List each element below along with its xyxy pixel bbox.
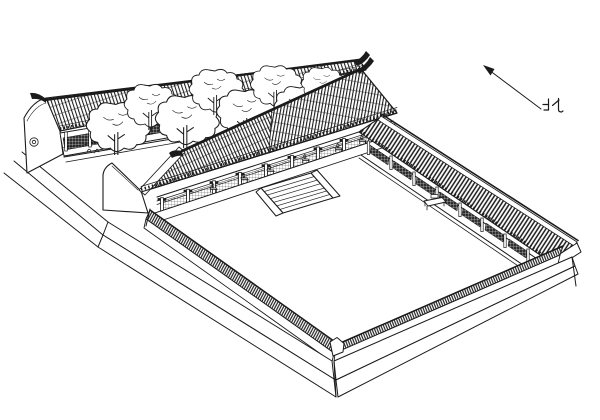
gallery-column bbox=[413, 172, 415, 186]
gallery-column bbox=[390, 156, 392, 170]
gallery-column bbox=[367, 141, 369, 155]
gallery-column bbox=[504, 234, 506, 248]
architectural-drawing: 北 bbox=[0, 0, 600, 420]
platform-west-steps bbox=[4, 152, 108, 247]
north-arrow-head bbox=[483, 65, 495, 76]
gallery-column bbox=[459, 203, 461, 217]
base-platform bbox=[98, 222, 578, 397]
north-arrow-line bbox=[489, 70, 541, 109]
north-label: 北 bbox=[543, 100, 557, 116]
gallery-ridge-strip bbox=[378, 116, 577, 246]
north-arrow: 北 bbox=[483, 65, 563, 116]
east-gallery bbox=[359, 115, 581, 275]
gallery-roof bbox=[359, 117, 577, 261]
rear-column bbox=[65, 132, 68, 151]
drawing-canvas: 北 bbox=[0, 0, 600, 420]
gallery-column bbox=[481, 218, 483, 232]
